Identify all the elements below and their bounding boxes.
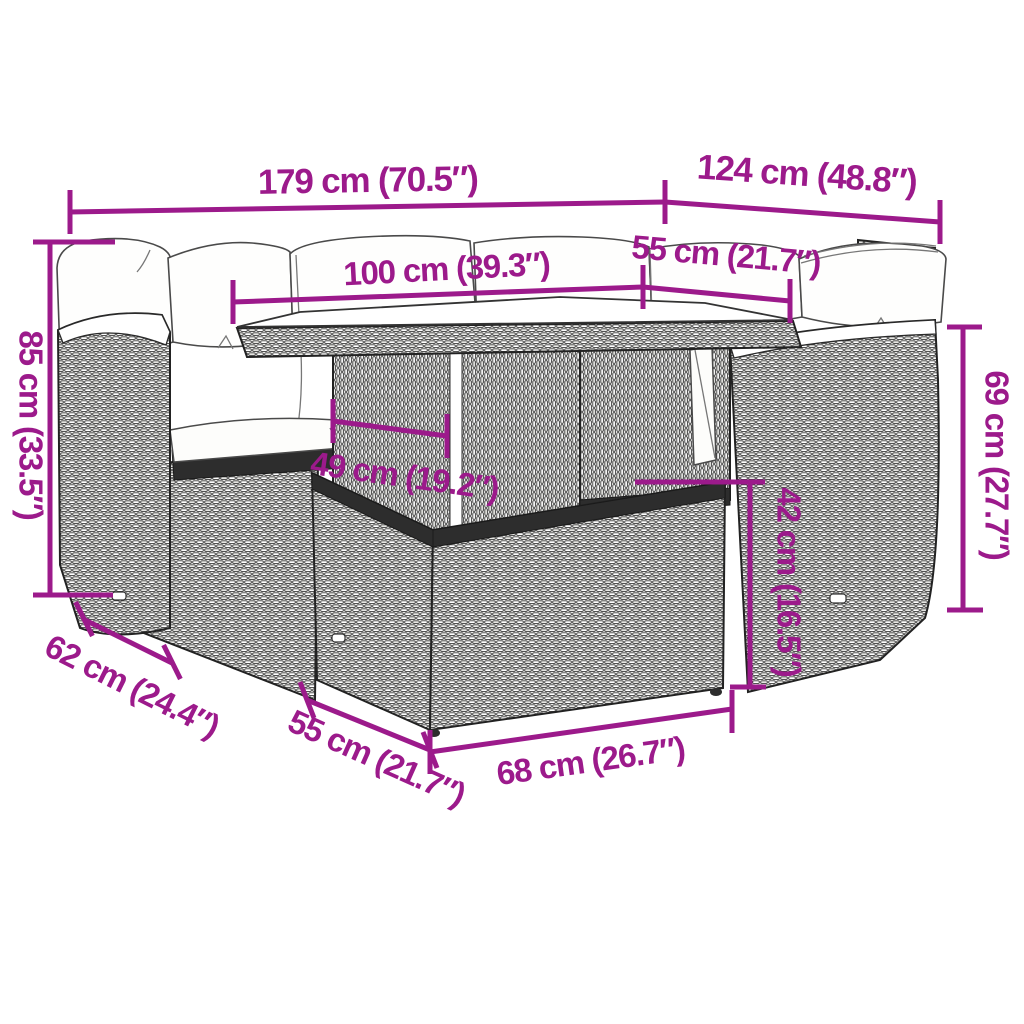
right-seat-wedge — [690, 346, 716, 465]
dim-label-seat-height: 42 cm (16.5″) — [771, 487, 808, 676]
dim-total-width: 179 cm (70.5″) — [70, 159, 665, 234]
dim-right-back-height: 69 cm (27.7″) — [947, 327, 1016, 610]
footstool-foot — [710, 688, 722, 696]
dim-line — [70, 202, 665, 212]
left-armrest — [58, 313, 170, 634]
dim-label-side-depth-top: 124 cm (48.8″) — [696, 147, 918, 201]
diagram-page: 179 cm (70.5″) 124 cm (48.8″) 100 cm (39… — [0, 0, 1024, 1024]
armrest-clip-detail — [112, 592, 126, 600]
dim-label-back-height: 85 cm (33.5″) — [13, 330, 50, 519]
dim-side-depth-top: 124 cm (48.8″) — [665, 147, 940, 244]
dim-line — [665, 202, 940, 222]
right-panel-clip-detail — [830, 594, 846, 603]
footstool-clip-detail — [332, 634, 345, 642]
right-panel — [730, 320, 939, 692]
right-sofa-panel — [730, 320, 939, 692]
pedestal-gap — [450, 350, 462, 545]
armrest-panel — [58, 313, 170, 634]
furniture-drawing — [57, 236, 946, 737]
furniture-dimension-diagram: 179 cm (70.5″) 124 cm (48.8″) 100 cm (39… — [0, 0, 1024, 1024]
dim-label-total-width: 179 cm (70.5″) — [258, 159, 478, 202]
dim-label-right-back-height: 69 cm (27.7″) — [979, 370, 1016, 559]
pillow — [799, 243, 946, 327]
